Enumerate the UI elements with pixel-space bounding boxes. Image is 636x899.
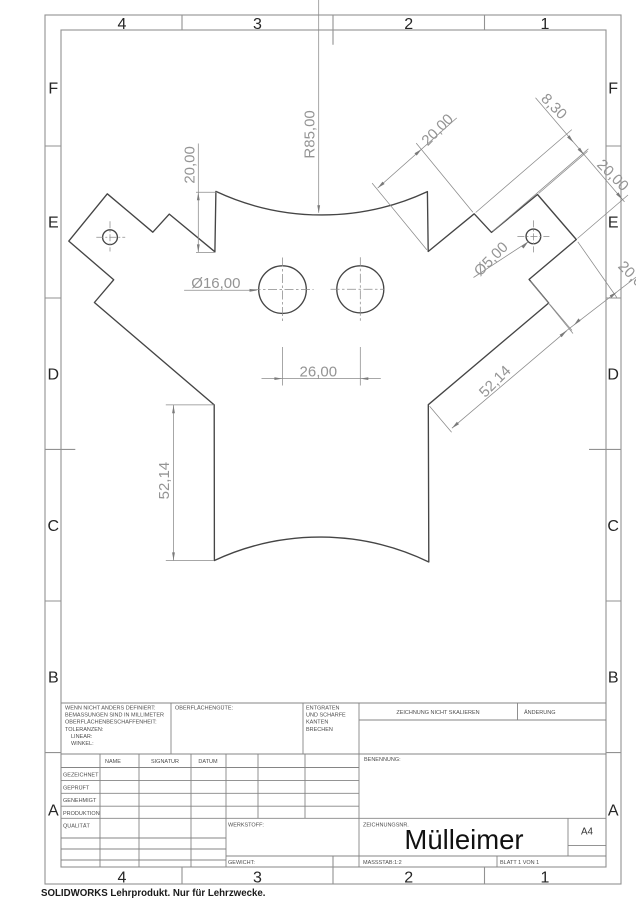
svg-text:BENENNUNG:: BENENNUNG: xyxy=(364,757,401,763)
svg-text:QUALITÄT: QUALITÄT xyxy=(63,823,91,830)
svg-text:A4: A4 xyxy=(581,826,594,837)
svg-text:2: 2 xyxy=(404,16,413,33)
svg-text:MASSSTAB:1:2: MASSSTAB:1:2 xyxy=(363,860,402,866)
svg-text:4: 4 xyxy=(118,16,127,33)
svg-text:20,00: 20,00 xyxy=(593,156,632,195)
svg-text:8,30: 8,30 xyxy=(537,90,570,123)
svg-text:C: C xyxy=(607,518,619,535)
svg-text:UND SCHARFE: UND SCHARFE xyxy=(306,713,346,719)
svg-text:C: C xyxy=(48,518,60,535)
svg-text:20,00: 20,00 xyxy=(614,258,636,297)
svg-text:F: F xyxy=(48,81,58,98)
svg-text:E: E xyxy=(48,215,59,232)
svg-text:ZEICHNUNG NICHT SKALIEREN: ZEICHNUNG NICHT SKALIEREN xyxy=(396,710,479,716)
svg-text:LINEAR:: LINEAR: xyxy=(71,734,93,740)
svg-text:B: B xyxy=(48,670,59,687)
svg-text:BRECHEN: BRECHEN xyxy=(306,727,333,733)
svg-text:TOLERANZEN:: TOLERANZEN: xyxy=(65,727,104,733)
svg-text:SOLIDWORKS Lehrprodukt. Nur fü: SOLIDWORKS Lehrprodukt. Nur für Lehrzwec… xyxy=(41,888,266,899)
svg-text:E: E xyxy=(608,215,619,232)
svg-text:WENN NICHT ANDERS DEFINIERT:: WENN NICHT ANDERS DEFINIERT: xyxy=(65,706,156,712)
svg-text:Mülleimer: Mülleimer xyxy=(404,824,523,855)
svg-text:ZEICHNUNGSNR.: ZEICHNUNGSNR. xyxy=(363,823,409,829)
svg-text:DATUM: DATUM xyxy=(198,759,218,765)
svg-text:WERKSTOFF:: WERKSTOFF: xyxy=(228,823,264,829)
svg-text:R85,00: R85,00 xyxy=(301,110,318,158)
svg-text:A: A xyxy=(48,803,59,820)
svg-text:Ø16,00: Ø16,00 xyxy=(191,275,240,292)
svg-text:OBERFLÄCHENGÜTE:: OBERFLÄCHENGÜTE: xyxy=(175,705,234,712)
svg-text:1: 1 xyxy=(541,16,550,33)
svg-text:OBERFLÄCHENBESCHAFFENHEIT:: OBERFLÄCHENBESCHAFFENHEIT: xyxy=(65,719,157,726)
svg-text:D: D xyxy=(48,366,60,383)
svg-text:BLATT 1 VON 1: BLATT 1 VON 1 xyxy=(500,860,539,866)
svg-text:20,00: 20,00 xyxy=(181,146,198,184)
svg-text:GEWICHT:: GEWICHT: xyxy=(228,860,255,866)
svg-text:B: B xyxy=(608,670,619,687)
svg-text:2: 2 xyxy=(404,870,413,887)
svg-text:PRODUKTION: PRODUKTION xyxy=(63,811,100,817)
svg-text:Ø5,00: Ø5,00 xyxy=(471,239,512,280)
svg-text:52,14: 52,14 xyxy=(156,462,173,500)
svg-text:3: 3 xyxy=(253,870,262,887)
svg-text:D: D xyxy=(607,366,619,383)
svg-text:20,00: 20,00 xyxy=(418,111,457,150)
svg-text:26,00: 26,00 xyxy=(300,364,338,381)
svg-text:KANTEN: KANTEN xyxy=(306,720,328,726)
svg-text:1: 1 xyxy=(541,870,550,887)
svg-text:SIGNATUR: SIGNATUR xyxy=(151,759,179,765)
svg-text:GEZEICHNET: GEZEICHNET xyxy=(63,773,99,779)
svg-text:GEPRÜFT: GEPRÜFT xyxy=(63,784,90,791)
svg-text:ÄNDERUNG: ÄNDERUNG xyxy=(524,709,555,716)
svg-text:NAME: NAME xyxy=(105,759,121,765)
svg-text:52,14: 52,14 xyxy=(476,362,515,401)
svg-text:GENEHMIGT: GENEHMIGT xyxy=(63,798,97,804)
svg-text:4: 4 xyxy=(118,870,127,887)
svg-text:F: F xyxy=(608,81,618,98)
svg-text:ENTGRATEN: ENTGRATEN xyxy=(306,706,340,712)
svg-text:3: 3 xyxy=(253,16,262,33)
svg-text:A: A xyxy=(608,803,619,820)
svg-text:WINKEL:: WINKEL: xyxy=(71,741,94,747)
svg-text:BEMASSUNGEN SIND IN MILLIMETER: BEMASSUNGEN SIND IN MILLIMETER xyxy=(65,713,164,719)
